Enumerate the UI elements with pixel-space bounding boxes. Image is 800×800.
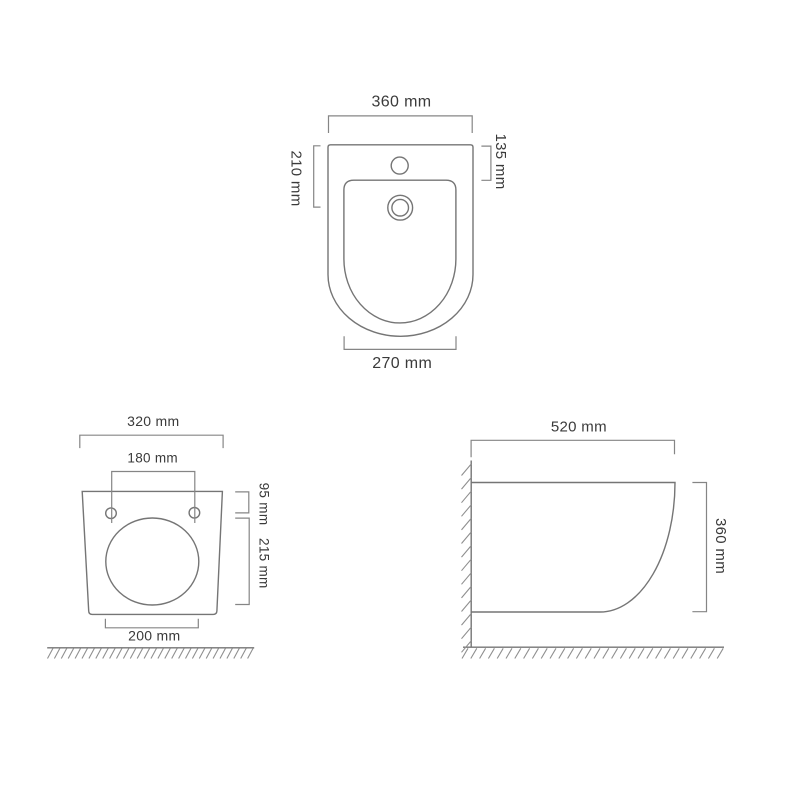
svg-text:210 mm: 210 mm <box>288 151 305 207</box>
svg-text:200 mm: 200 mm <box>128 627 180 643</box>
svg-text:135 mm: 135 mm <box>492 134 509 190</box>
svg-text:520 mm: 520 mm <box>551 419 607 436</box>
svg-text:215 mm: 215 mm <box>256 538 271 589</box>
svg-text:270 mm: 270 mm <box>372 355 432 372</box>
svg-text:95 mm: 95 mm <box>256 483 271 526</box>
svg-text:320 mm: 320 mm <box>127 413 179 429</box>
svg-text:360 mm: 360 mm <box>372 94 432 111</box>
svg-text:360 mm: 360 mm <box>712 518 729 574</box>
svg-text:180 mm: 180 mm <box>127 451 178 466</box>
